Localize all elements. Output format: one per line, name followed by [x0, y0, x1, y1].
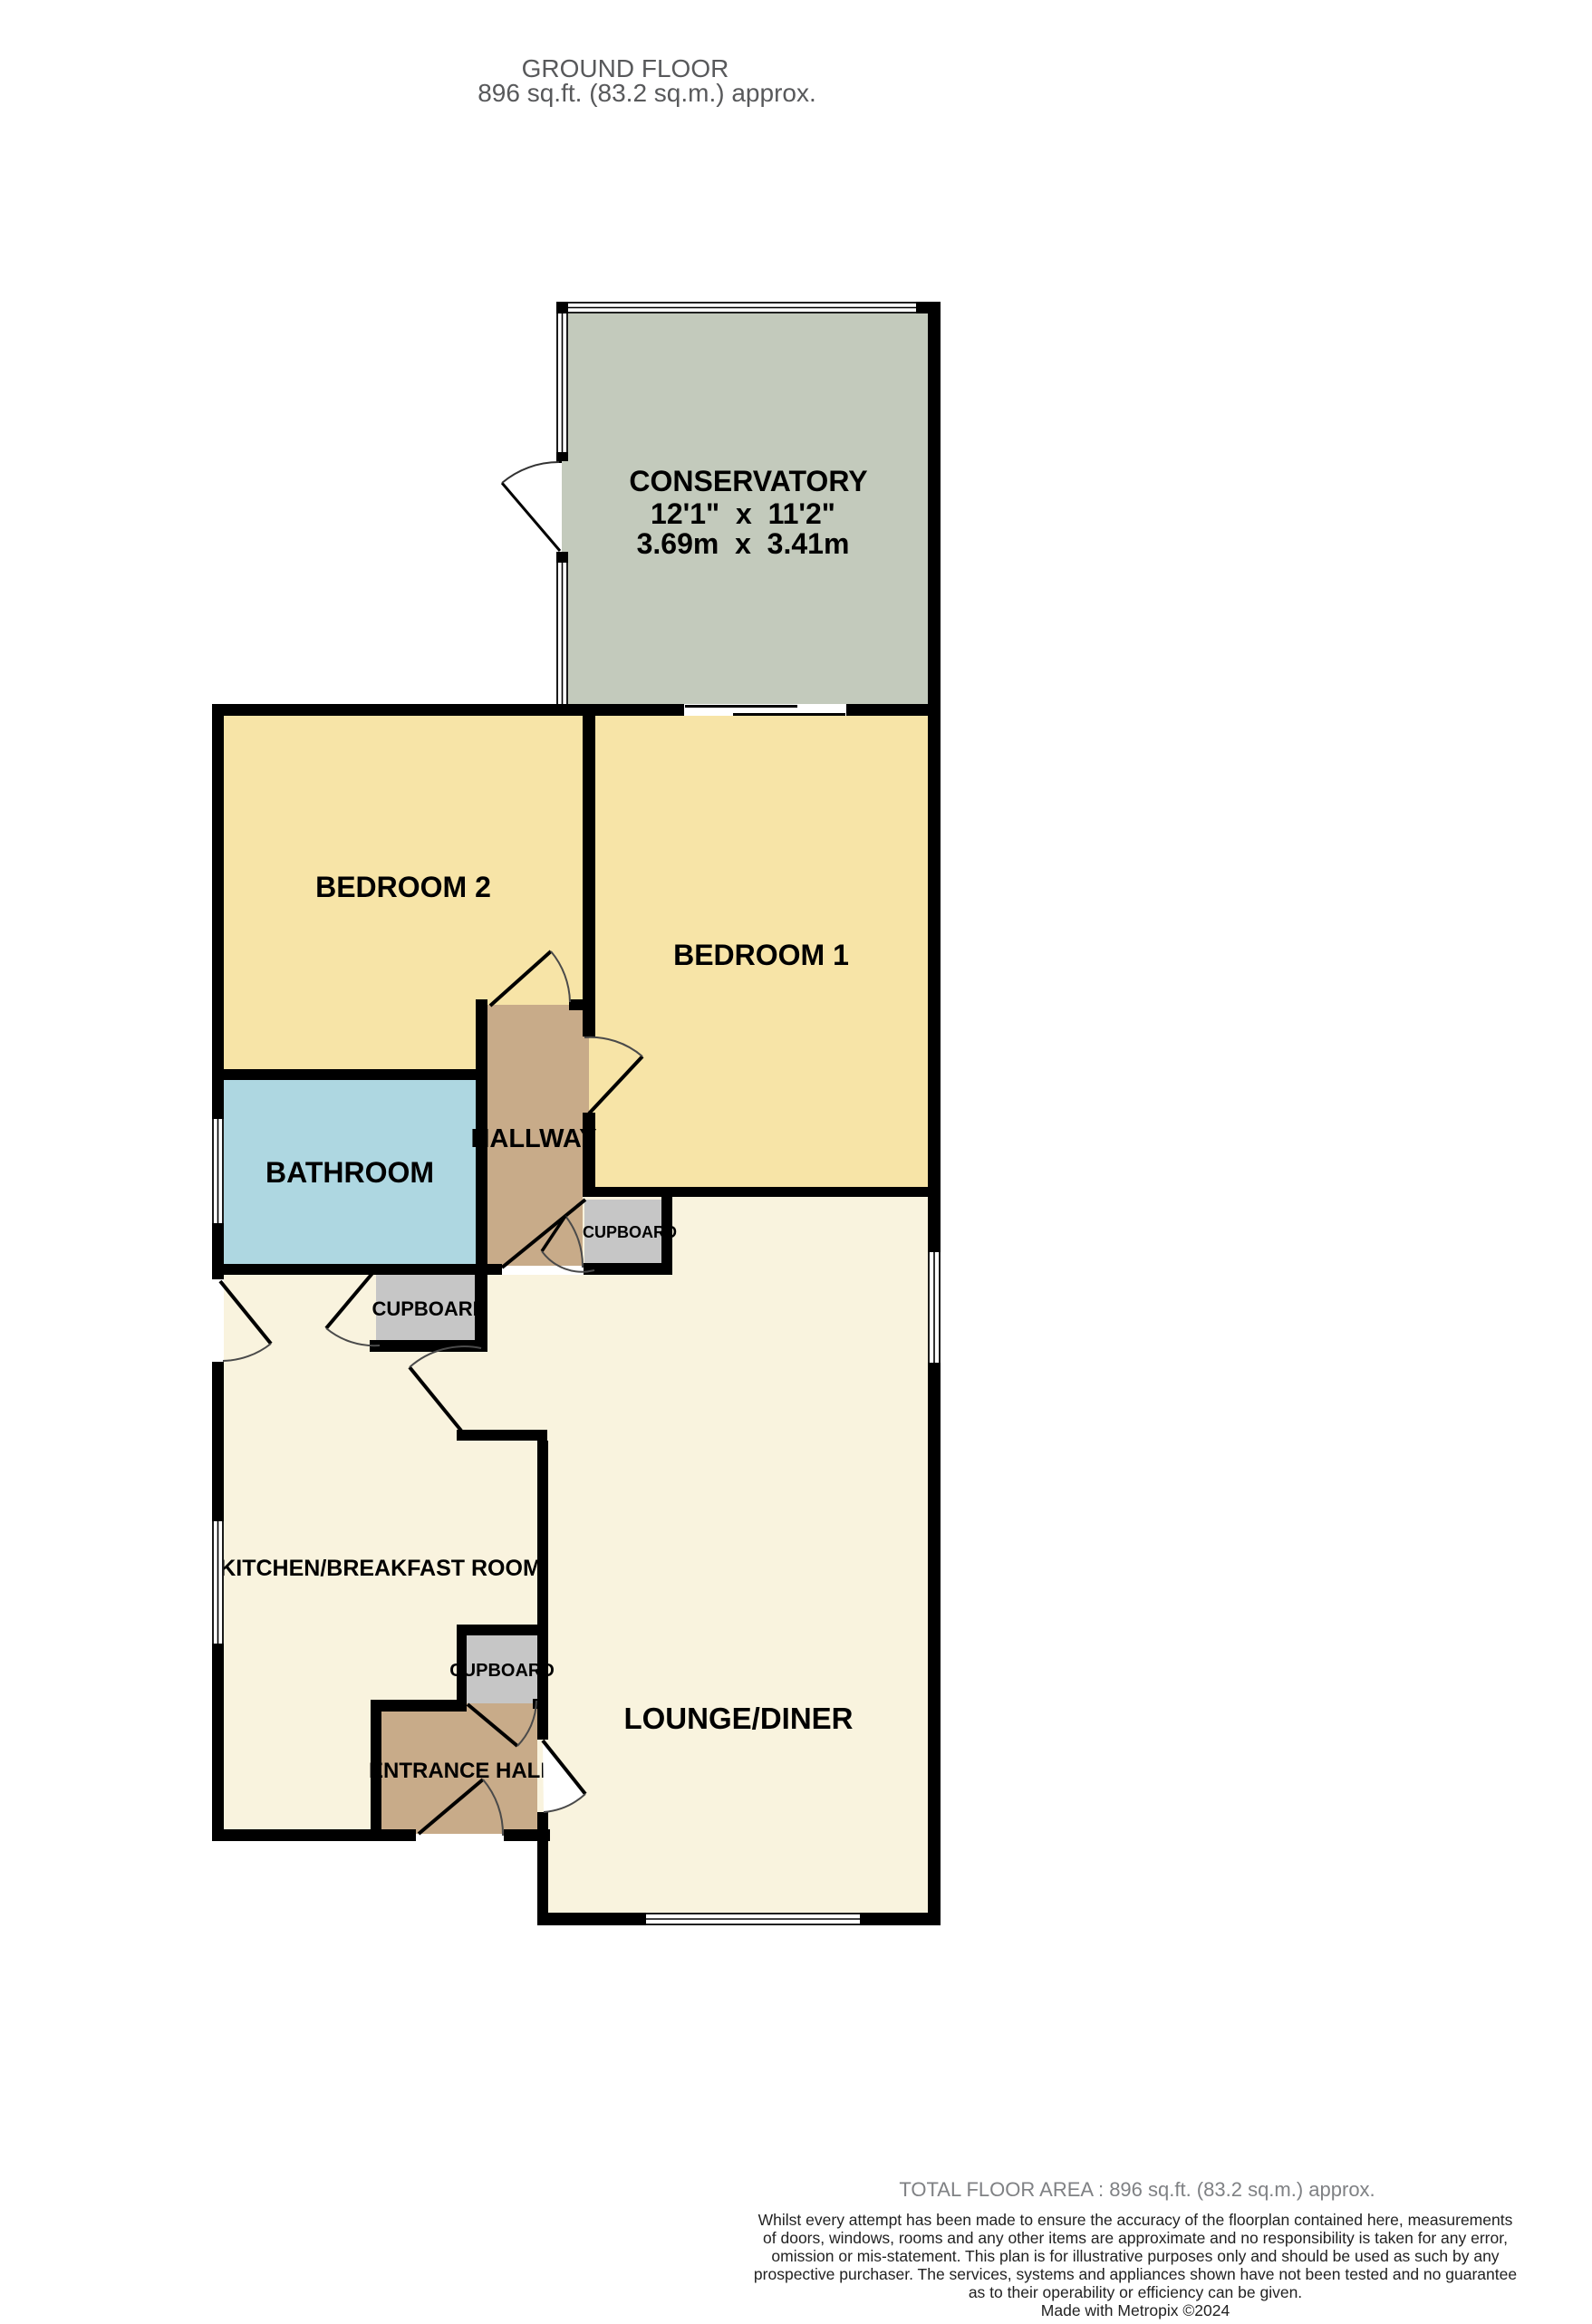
- svg-text:TOTAL FLOOR AREA : 896 sq.ft.: TOTAL FLOOR AREA : 896 sq.ft. (83.2 sq.m…: [899, 2178, 1375, 2201]
- svg-text:BEDROOM 1: BEDROOM 1: [673, 939, 849, 971]
- svg-text:KITCHEN/BREAKFAST ROOM: KITCHEN/BREAKFAST ROOM: [219, 1556, 542, 1581]
- svg-text:BATHROOM: BATHROOM: [265, 1156, 434, 1189]
- svg-text:ENTRANCE HALL: ENTRANCE HALL: [369, 1759, 554, 1783]
- svg-text:LOUNGE/DINER: LOUNGE/DINER: [623, 1702, 853, 1735]
- svg-text:as to their operability or eff: as to their operability or efficiency ca…: [969, 2283, 1302, 2301]
- svg-text:12'1" x 11'2": 12'1" x 11'2": [651, 497, 835, 530]
- svg-text:CONSERVATORY: CONSERVATORY: [629, 465, 867, 497]
- svg-text:prospective purchaser. The ser: prospective purchaser. The services, sys…: [754, 2265, 1517, 2283]
- svg-text:HALLWAY: HALLWAY: [470, 1124, 596, 1153]
- svg-text:Made with Metropix ©2024: Made with Metropix ©2024: [1041, 2301, 1230, 2319]
- svg-text:896 sq.ft. (83.2 sq.m.) approx: 896 sq.ft. (83.2 sq.m.) approx.: [478, 79, 816, 107]
- svg-text:3.69m x 3.41m: 3.69m x 3.41m: [637, 527, 850, 560]
- svg-text:BEDROOM 2: BEDROOM 2: [315, 871, 491, 903]
- svg-text:omission or mis-statement. Thi: omission or mis-statement. This plan is …: [771, 2247, 1499, 2265]
- svg-text:of doors, windows, rooms and a: of doors, windows, rooms and any other i…: [763, 2229, 1508, 2247]
- svg-text:CUPBOARD: CUPBOARD: [371, 1297, 487, 1320]
- svg-text:Whilst every attempt has been: Whilst every attempt has been made to en…: [758, 2211, 1513, 2229]
